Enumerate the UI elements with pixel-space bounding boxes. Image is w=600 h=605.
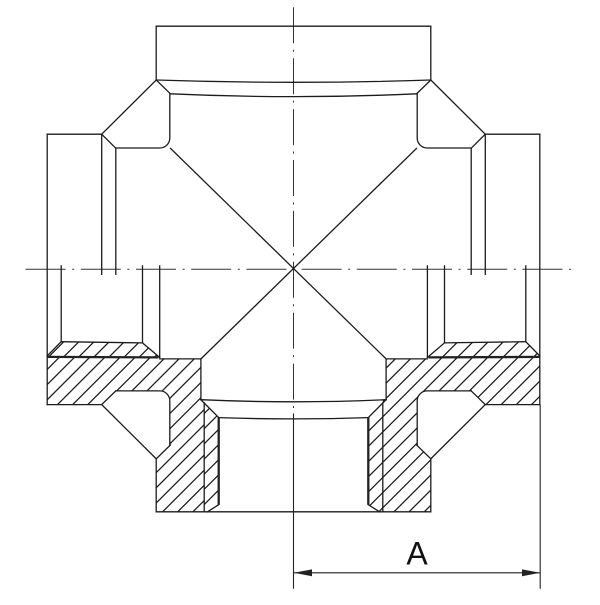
svg-text:A: A xyxy=(406,536,428,572)
